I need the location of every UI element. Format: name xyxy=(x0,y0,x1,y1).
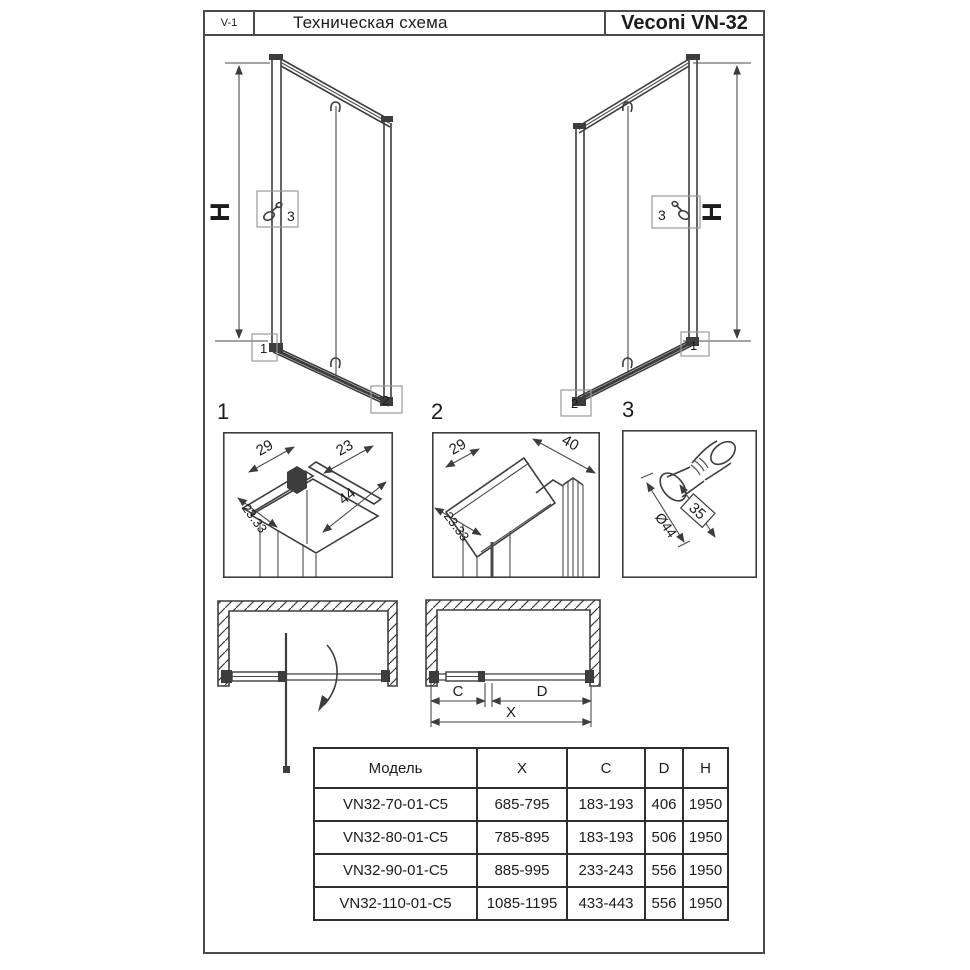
detail-3-dimensions: 35 Ø44 xyxy=(641,473,715,547)
height-label: H xyxy=(205,202,235,222)
col-header-model: Модель xyxy=(314,748,477,788)
cell-c: 183-193 xyxy=(567,821,645,854)
dim-x-label: X xyxy=(506,704,516,721)
callout-1: 1 xyxy=(681,332,709,356)
callout-2-label: 2 xyxy=(571,396,578,411)
pivot-glass-panel xyxy=(331,102,340,380)
callout-3-label: 3 xyxy=(287,208,295,224)
cell-x: 1085-1195 xyxy=(477,887,567,920)
detail-1-drawing: 29 23 44 23.33 xyxy=(223,432,393,578)
detail-2-label: 2 xyxy=(431,399,443,425)
height-dimension: H xyxy=(205,63,270,341)
table-row: VN32-70-01-C5 685-795 183-193 406 1950 xyxy=(314,788,728,821)
dim-23-33: 23.33 xyxy=(441,509,473,544)
cell-x: 785-895 xyxy=(477,821,567,854)
cell-model: VN32-110-01-C5 xyxy=(314,887,477,920)
callout-1-label: 1 xyxy=(690,338,697,353)
right-plan-view-drawing: C D X xyxy=(422,597,607,737)
detail-2-dimensions: 29 40 23.33 xyxy=(435,432,595,544)
dim-23: 23 xyxy=(333,437,356,460)
cell-d: 506 xyxy=(645,821,683,854)
cell-h: 1950 xyxy=(683,821,728,854)
page-title: Техническая схема xyxy=(255,12,604,34)
detail-3-label: 3 xyxy=(622,397,634,423)
detail-2-drawing: 29 40 23.33 xyxy=(432,432,600,578)
left-door-elevation-drawing: H 3 1 2 xyxy=(210,50,410,415)
callout-2-label: 2 xyxy=(382,393,389,408)
detail-1-label: 1 xyxy=(217,399,229,425)
cell-c: 183-193 xyxy=(567,788,645,821)
knob-drawing xyxy=(655,437,739,506)
col-header-h: H xyxy=(683,748,728,788)
width-dimensions: C D X xyxy=(431,683,591,727)
cell-h: 1950 xyxy=(683,854,728,887)
cell-x: 685-795 xyxy=(477,788,567,821)
doc-code: V-1 xyxy=(205,12,255,34)
cell-h: 1950 xyxy=(683,788,728,821)
size-table: Модель X C D H VN32-70-01-C5 685-795 183… xyxy=(313,747,729,921)
cell-d: 556 xyxy=(645,887,683,920)
height-dimension: H xyxy=(683,63,751,341)
callout-3-label: 3 xyxy=(658,207,666,223)
right-door-elevation-drawing: H 3 2 1 xyxy=(553,50,758,415)
detail-3-drawing: 35 Ø44 xyxy=(622,430,757,578)
cell-d: 406 xyxy=(645,788,683,821)
cell-model: VN32-90-01-C5 xyxy=(314,854,477,887)
cell-d: 556 xyxy=(645,854,683,887)
pivot-glass-panel xyxy=(623,102,632,378)
swing-arrow xyxy=(318,645,337,712)
cell-x: 885-995 xyxy=(477,854,567,887)
cell-c: 433-443 xyxy=(567,887,645,920)
product-name: Veconi VN-32 xyxy=(604,12,763,34)
roller-hook-icon xyxy=(623,358,632,368)
knob-callout: 3 xyxy=(652,196,700,228)
col-header-d: D xyxy=(645,748,683,788)
dim-c-label: C xyxy=(453,683,464,700)
page: V-1 Техническая схема Veconi VN-32 xyxy=(0,0,970,970)
detail-1-dimensions: 29 23 44 23.33 xyxy=(238,437,386,536)
dim-40: 40 xyxy=(559,432,582,455)
cell-c: 233-243 xyxy=(567,854,645,887)
height-label: H xyxy=(697,202,727,222)
table-row: VN32-110-01-C5 1085-1195 433-443 556 195… xyxy=(314,887,728,920)
table-row: VN32-80-01-C5 785-895 183-193 506 1950 xyxy=(314,821,728,854)
roller-hook-icon xyxy=(331,358,340,368)
door-assembly xyxy=(429,670,594,683)
cell-h: 1950 xyxy=(683,887,728,920)
cell-model: VN32-70-01-C5 xyxy=(314,788,477,821)
table-row: VN32-90-01-C5 885-995 233-243 556 1950 xyxy=(314,854,728,887)
knob-callout: 3 xyxy=(257,191,298,227)
dim-29: 29 xyxy=(446,436,469,459)
col-header-x: X xyxy=(477,748,567,788)
profile-section xyxy=(446,458,583,577)
cell-model: VN32-80-01-C5 xyxy=(314,821,477,854)
dim-29: 29 xyxy=(253,437,276,460)
dim-d-label: D xyxy=(537,683,548,700)
knob-icon xyxy=(671,201,690,221)
callout-1-label: 1 xyxy=(260,341,267,356)
table-header-row: Модель X C D H xyxy=(314,748,728,788)
dim-diameter-44: Ø44 xyxy=(652,510,680,541)
roller-hook-icon xyxy=(331,102,340,112)
dim-44: 44 xyxy=(335,485,359,509)
title-block: V-1 Техническая схема Veconi VN-32 xyxy=(205,12,763,36)
col-header-c: C xyxy=(567,748,645,788)
